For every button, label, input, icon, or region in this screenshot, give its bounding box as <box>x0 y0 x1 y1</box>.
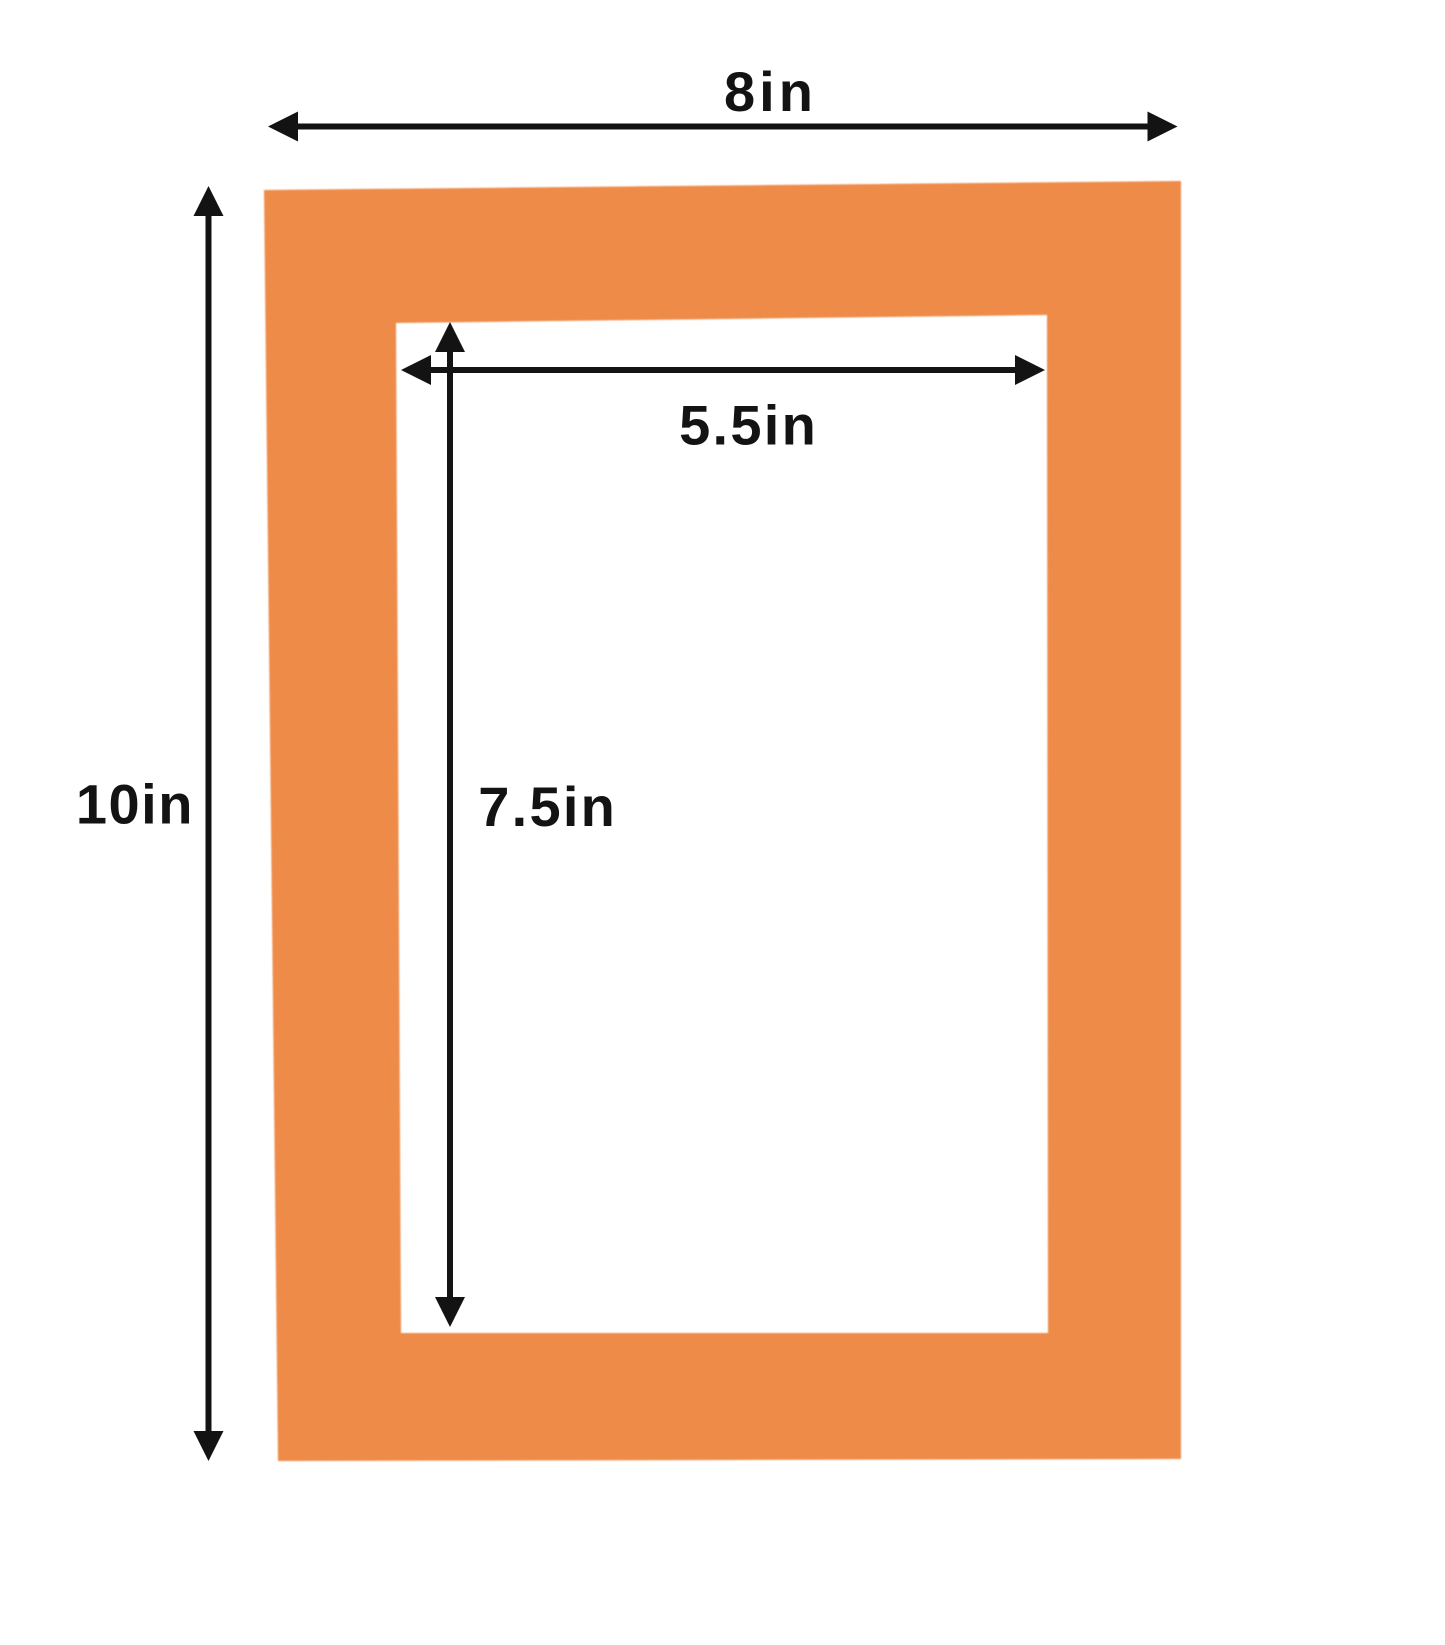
svg-text:7.5in: 7.5in <box>478 775 617 838</box>
svg-text:10in: 10in <box>76 773 194 836</box>
svg-text:5.5in: 5.5in <box>679 394 818 457</box>
svg-text:8in: 8in <box>724 60 817 123</box>
